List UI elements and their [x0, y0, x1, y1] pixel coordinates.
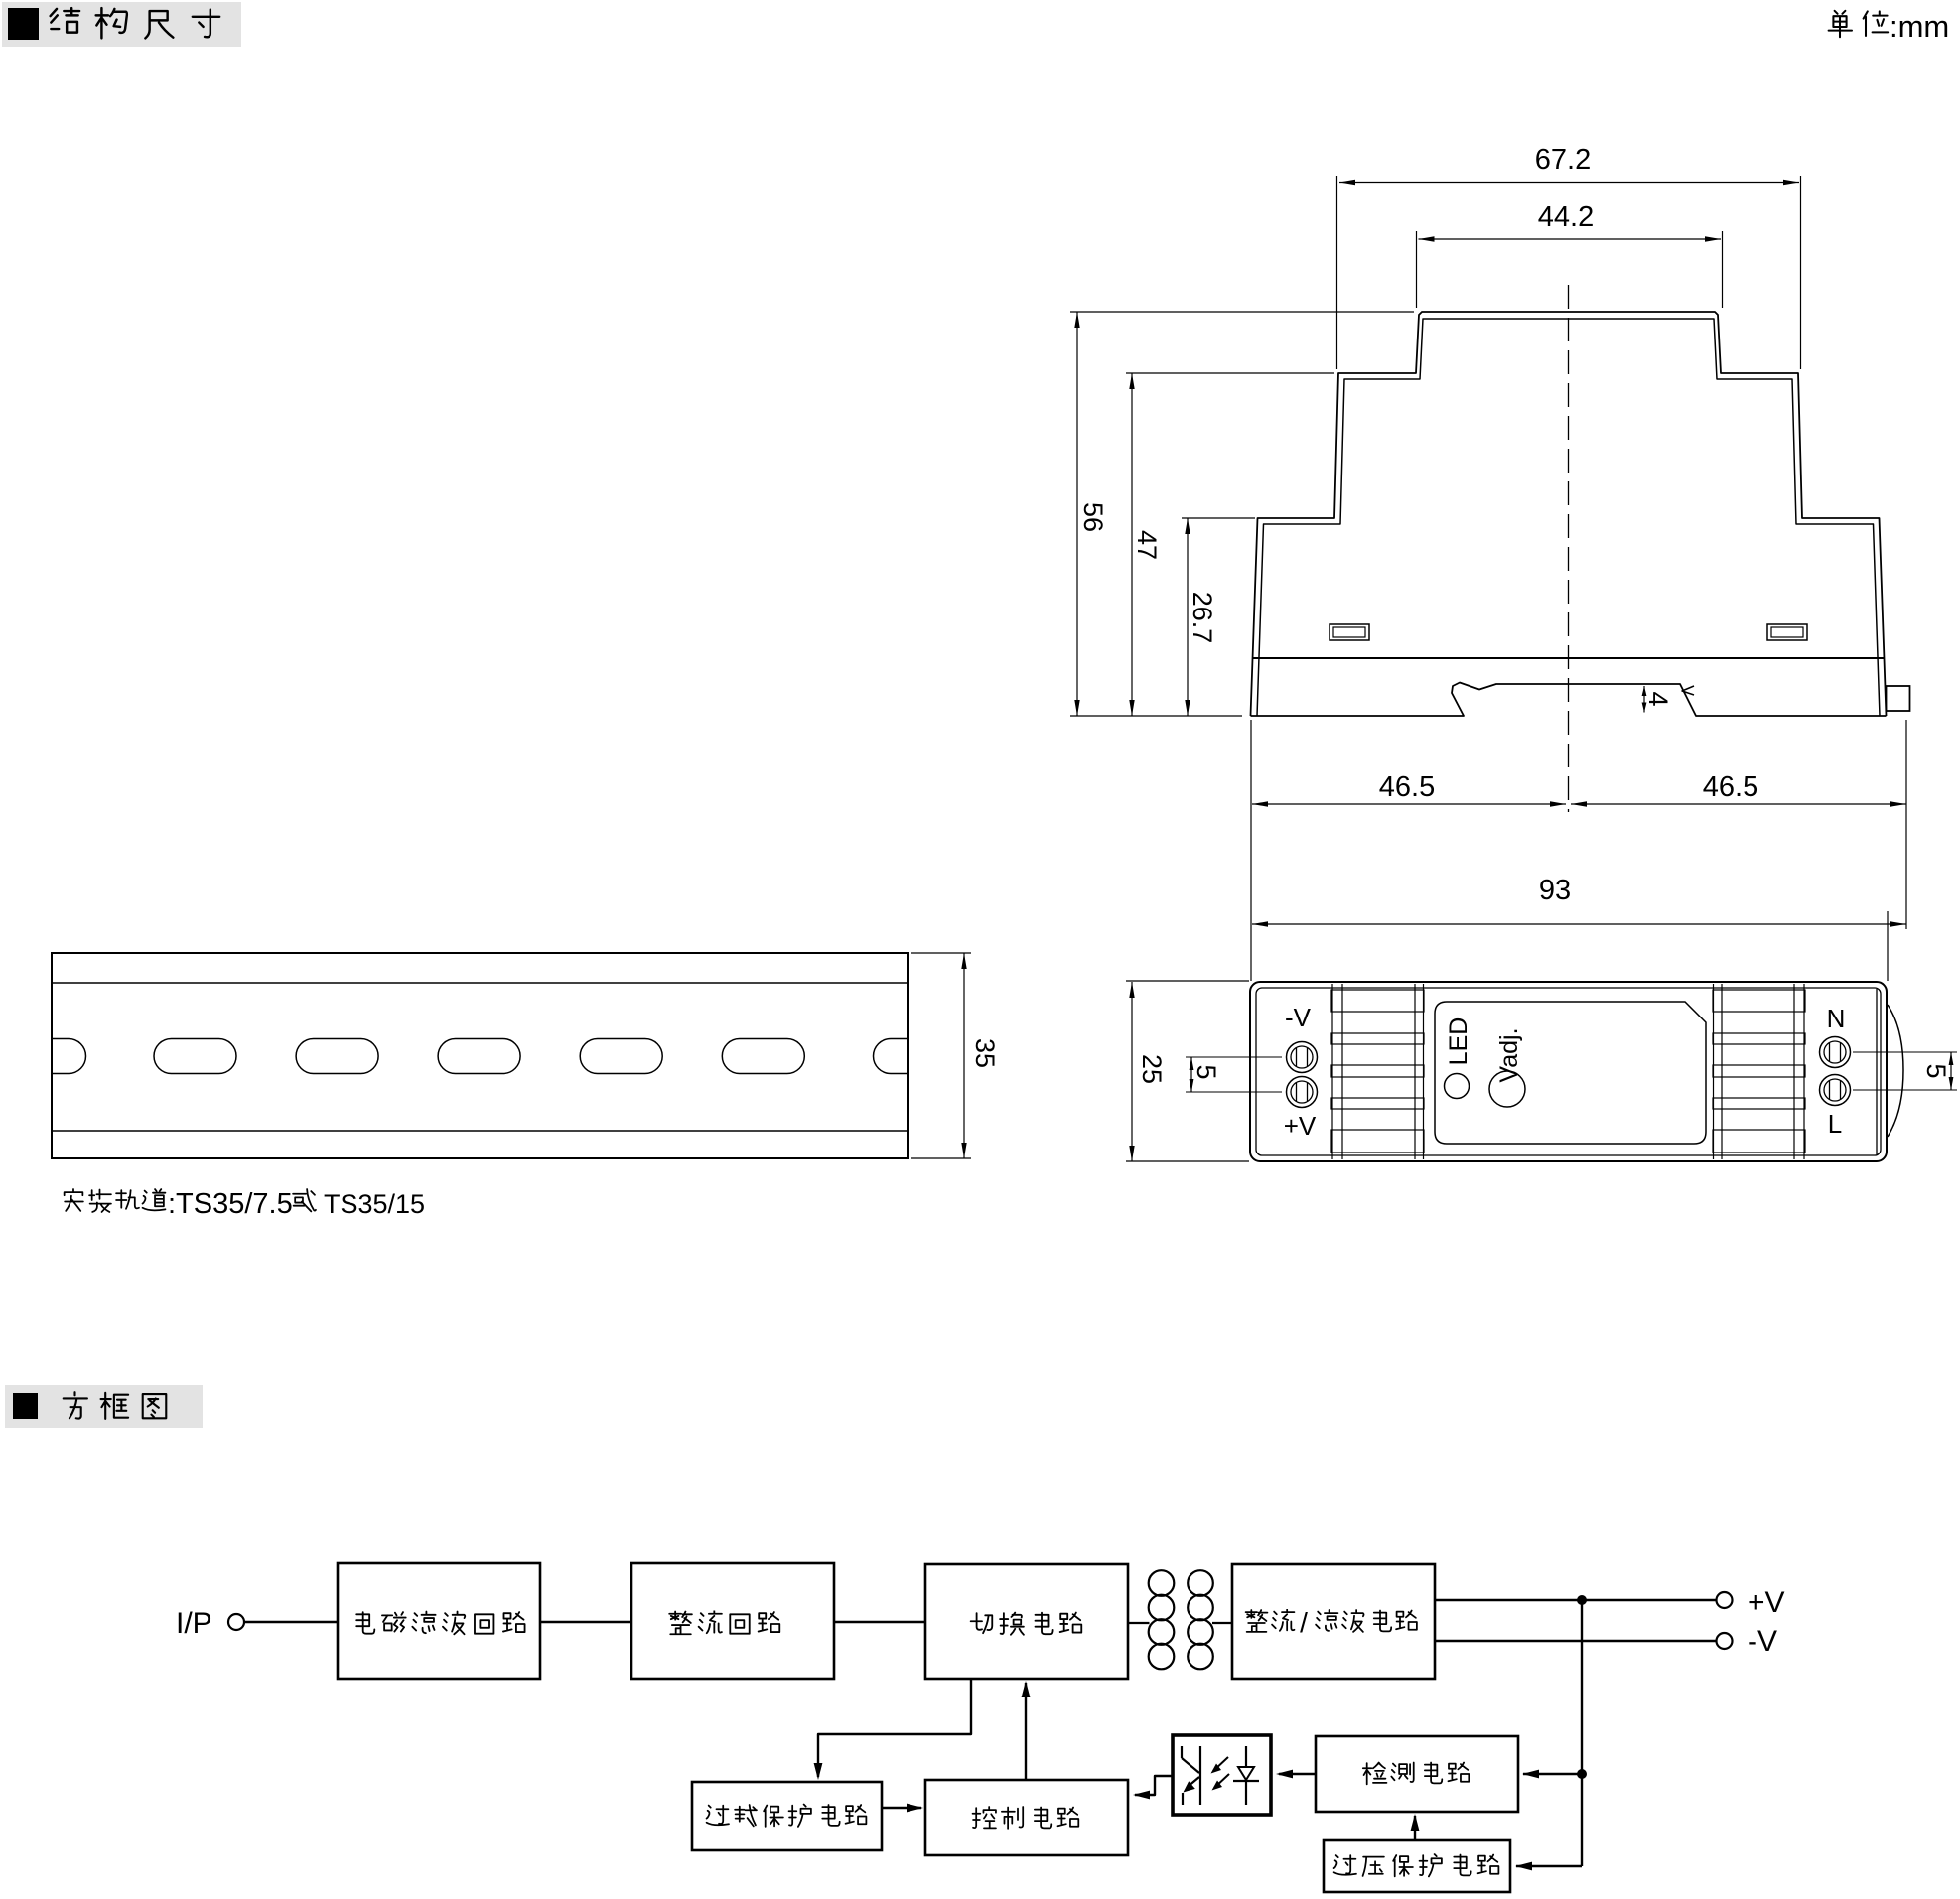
svg-text:26.7: 26.7: [1188, 592, 1217, 644]
svg-text:N: N: [1827, 1004, 1846, 1033]
svg-text:/: /: [1300, 1607, 1308, 1638]
svg-text::mm: :mm: [1890, 9, 1949, 44]
svg-text:+V: +V: [1748, 1586, 1785, 1619]
svg-text:25: 25: [1137, 1054, 1167, 1084]
svg-text:I/P: I/P: [176, 1607, 212, 1640]
svg-text:47: 47: [1132, 530, 1162, 560]
svg-text:-V: -V: [1748, 1625, 1777, 1658]
svg-text:35: 35: [970, 1038, 1000, 1068]
svg-text:67.2: 67.2: [1535, 144, 1591, 176]
svg-text:4: 4: [1643, 691, 1673, 706]
svg-text:46.5: 46.5: [1379, 771, 1435, 803]
svg-text:TS35/15: TS35/15: [324, 1189, 425, 1219]
svg-text:44.2: 44.2: [1538, 202, 1594, 233]
svg-text:93: 93: [1539, 875, 1571, 906]
svg-text:L: L: [1828, 1109, 1842, 1139]
svg-text::TS35/7.5: :TS35/7.5: [168, 1188, 293, 1220]
svg-text:46.5: 46.5: [1703, 771, 1758, 803]
svg-text:5: 5: [1921, 1063, 1951, 1078]
svg-text:-V: -V: [1285, 1003, 1312, 1032]
svg-text:5: 5: [1191, 1064, 1221, 1079]
svg-text:56: 56: [1078, 502, 1108, 532]
svg-text:Vadj.: Vadj.: [1495, 1027, 1523, 1082]
svg-text:+V: +V: [1284, 1111, 1317, 1141]
svg-text:LED: LED: [1445, 1017, 1472, 1066]
